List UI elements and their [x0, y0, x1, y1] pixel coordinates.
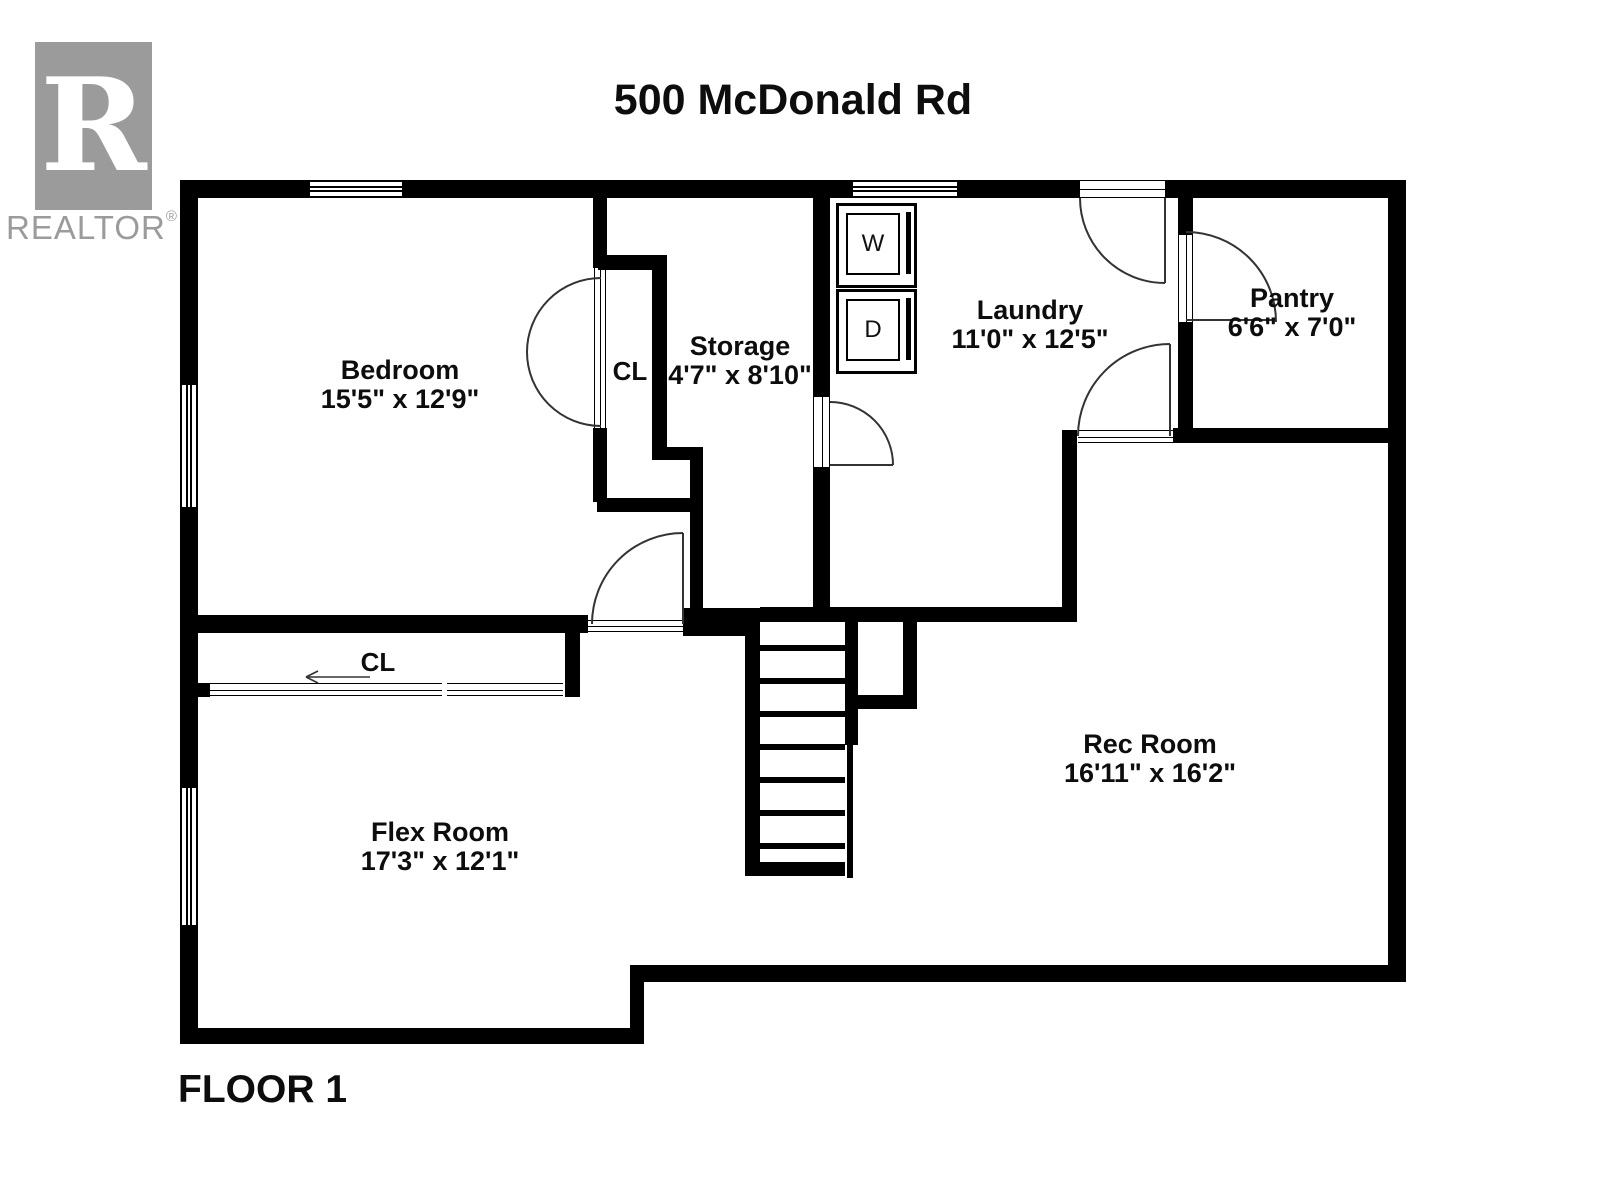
wall-outer-left [180, 925, 198, 1044]
laundry-rec-door-swing [1078, 344, 1170, 436]
laundry-entry-door-frame [1080, 180, 1165, 198]
window [310, 180, 402, 198]
sliding-door [447, 683, 563, 696]
wall-outer-top [957, 180, 1080, 198]
french-door-swing [527, 278, 601, 352]
laundry-door-swing [830, 402, 893, 465]
stairs-bottom-cap [745, 862, 845, 876]
dryer-label: D [846, 299, 900, 361]
window [180, 385, 198, 507]
hall-door-swing [592, 533, 683, 624]
wall-outer-bottom-left [180, 1028, 630, 1044]
stair-tread [760, 744, 845, 750]
wall-closet-jog [652, 447, 703, 460]
realtor-r-icon: R [40, 62, 146, 190]
wall-outer-top [180, 180, 310, 198]
room-label-rec-room: Rec Room 16'11" x 16'2" [1025, 730, 1275, 788]
stairs-east-rail [847, 745, 853, 878]
floor-label: FLOOR 1 [178, 1068, 347, 1112]
registered-trademark-icon: ® [166, 208, 178, 225]
stair-tread [760, 645, 845, 651]
stair-tread [760, 777, 845, 783]
wall-outer-bottom-right [630, 965, 1406, 982]
wall-flex-closet-east [565, 633, 580, 697]
page-title: 500 McDonald Rd [293, 76, 1293, 125]
room-label-bedroom: Bedroom 15'5" x 12'9" [250, 356, 550, 414]
laundry-entry-door-swing [1080, 198, 1165, 283]
sliding-door [210, 683, 442, 696]
laundry-rec-door-frame [1078, 430, 1173, 443]
wall-outer-step [630, 965, 644, 1044]
wall-bedroom-south [198, 615, 588, 633]
wall-closet-bottom [597, 498, 690, 512]
wall-bedroom-east [593, 428, 607, 502]
stair-tread [760, 678, 845, 684]
stair-tread [760, 810, 845, 816]
wall-outer-left [180, 180, 198, 385]
wall-pantry-south [1173, 428, 1388, 443]
washer: W [836, 203, 917, 288]
wall-closet-top [598, 255, 667, 270]
wall-hall-south [760, 607, 1077, 622]
room-label-flex-room: Flex Room 17'3" x 12'1" [315, 818, 565, 876]
wall-laundry-west [813, 467, 830, 617]
realtor-logo-wordmark: REALTOR® [6, 208, 178, 247]
room-label-laundry: Laundry 11'0" x 12'5" [905, 296, 1155, 354]
washer-door-icon [906, 212, 911, 274]
washer-label: W [846, 213, 900, 275]
hall-door-frame [588, 620, 685, 632]
wall-outer-top [402, 180, 853, 198]
stairs-east-wall [845, 622, 858, 745]
wall-pantry-west [1178, 195, 1193, 235]
stairs-west-wall [745, 622, 760, 874]
laundry-door-frame [813, 397, 830, 467]
wall-outer-top [1165, 180, 1406, 198]
room-label-storage: Storage 4'7" x 8'10" [640, 332, 840, 390]
window [853, 180, 957, 198]
stair-tread [760, 843, 845, 849]
wall-laundry-east [1062, 430, 1077, 622]
stairs-alcove-south-wall [857, 695, 917, 709]
french-door-frame [594, 268, 606, 428]
wall-flex-closet-post [193, 683, 210, 697]
room-label-flex-closet: CL [343, 648, 413, 677]
wall-outer-left [180, 507, 198, 788]
wall-closet-jog [690, 460, 703, 612]
realtor-logo-mark: R [35, 42, 152, 210]
window [180, 788, 198, 925]
floor-plan-page: R REALTOR® 500 McDonald Rd FLOOR 1 [0, 0, 1600, 1200]
stair-tread [760, 711, 845, 717]
room-label-pantry: Pantry 6'6" x 7'0" [1167, 284, 1417, 342]
